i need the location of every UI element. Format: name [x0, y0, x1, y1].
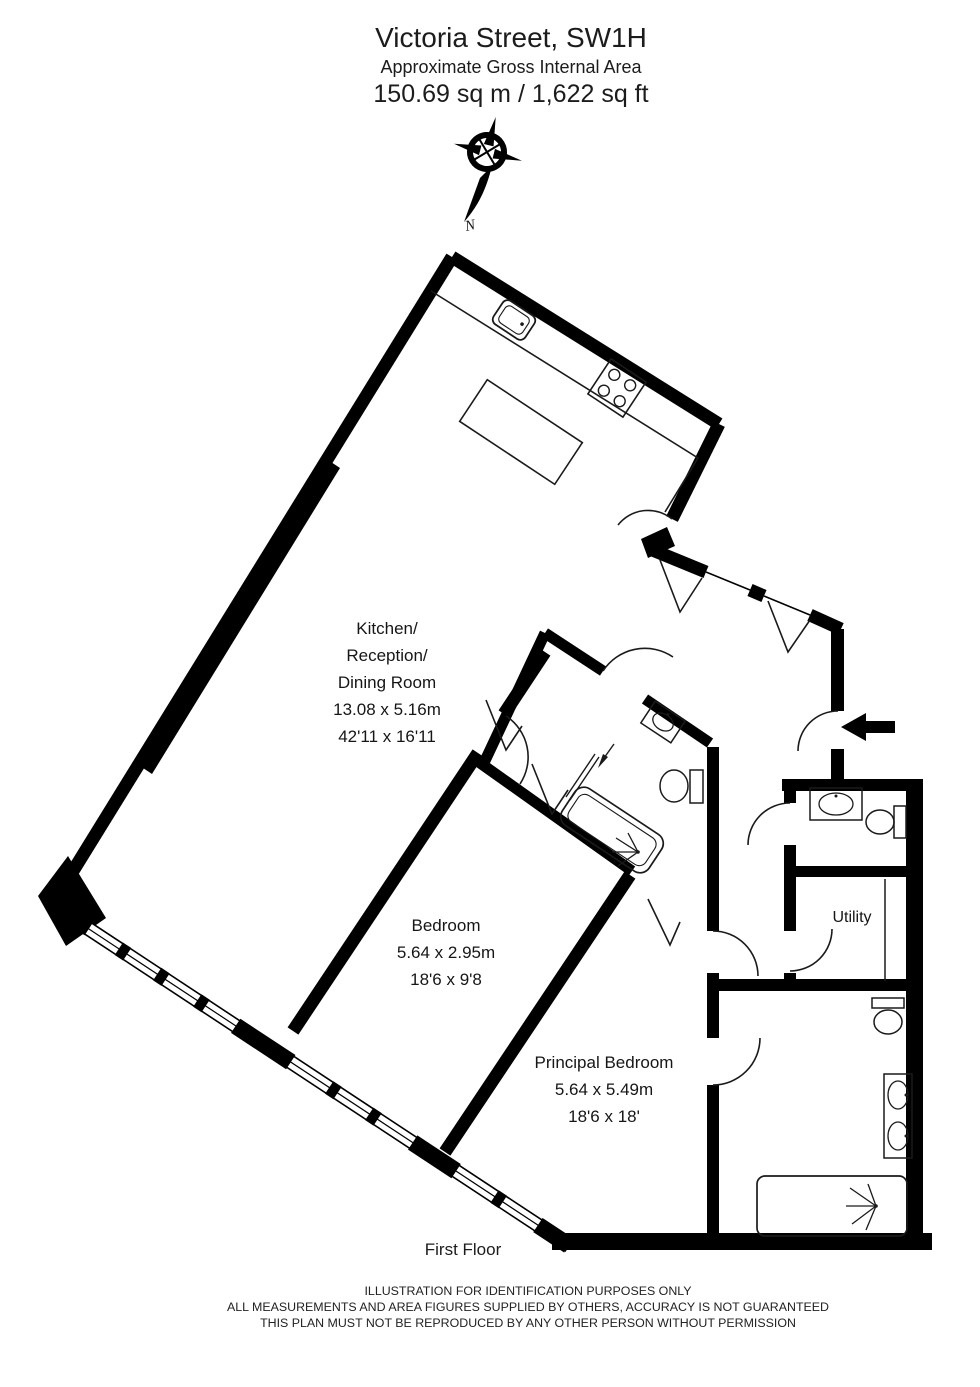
floor-plan: N [0, 0, 980, 1387]
disclaimer-line: THIS PLAN MUST NOT BE REPRODUCED BY ANY … [76, 1315, 980, 1331]
ensuite-fixtures [757, 998, 912, 1236]
disclaimer: ILLUSTRATION FOR IDENTIFICATION PURPOSES… [0, 1283, 980, 1331]
bathroom-fixtures [556, 701, 703, 877]
ensuite-toilet [872, 998, 904, 1034]
utility-label: Utility [832, 909, 871, 926]
wc-basin [810, 788, 862, 820]
bedroom-door-arc [506, 716, 528, 784]
bathroom-toilet [660, 770, 703, 803]
disclaimer-line: ILLUSTRATION FOR IDENTIFICATION PURPOSES… [76, 1283, 980, 1299]
wc-toilet [866, 806, 906, 838]
kitchen-label-1: Kitchen/ [356, 619, 418, 638]
principal-door-arc [713, 931, 758, 976]
ensuite-door-arc [713, 1038, 760, 1085]
floor-label: First Floor [0, 1240, 980, 1260]
entrance-door-arc [798, 711, 838, 751]
compass-icon [450, 109, 531, 222]
shower [757, 1176, 907, 1236]
kitchen-label-2: Reception/ [346, 646, 428, 665]
bedroom-dim-m: 5.64 x 2.95m [397, 943, 495, 962]
wc-fixtures [810, 788, 906, 838]
wall-step [140, 460, 340, 774]
kitchen-island [460, 380, 583, 485]
principal-bedroom-dim-ft: 18'6 x 18' [568, 1107, 640, 1126]
bathroom-door-arc [603, 648, 673, 671]
compass-north-label: N [463, 217, 478, 235]
utility-door-arc [790, 929, 832, 971]
principal-bedroom-label: Principal Bedroom [535, 1053, 674, 1072]
bedroom-label: Bedroom [412, 916, 481, 935]
principal-wardrobe-doors [648, 899, 680, 945]
disclaimer-line: ALL MEASUREMENTS AND AREA FIGURES SUPPLI… [76, 1299, 980, 1315]
floorplan-page: Victoria Street, SW1H Approximate Gross … [0, 0, 980, 1387]
window-wall [76, 916, 574, 1252]
towel-rail [566, 744, 614, 800]
wc-door-arc [748, 803, 790, 845]
entrance-arrow-icon [841, 713, 895, 741]
kitchen-dim-ft: 42'11 x 16'11 [338, 727, 436, 746]
bedroom-dim-ft: 18'6 x 9'8 [410, 970, 482, 989]
wall-solid-section [231, 1019, 295, 1070]
kitchen-door-arc [618, 510, 672, 525]
principal-bedroom-dim-m: 5.64 x 5.49m [555, 1080, 653, 1099]
kitchen-label-3: Dining Room [338, 673, 436, 692]
hall-wardrobe-doors [768, 601, 810, 652]
interior-walls [293, 572, 923, 1238]
kitchen-dim-m: 13.08 x 5.16m [333, 700, 441, 719]
